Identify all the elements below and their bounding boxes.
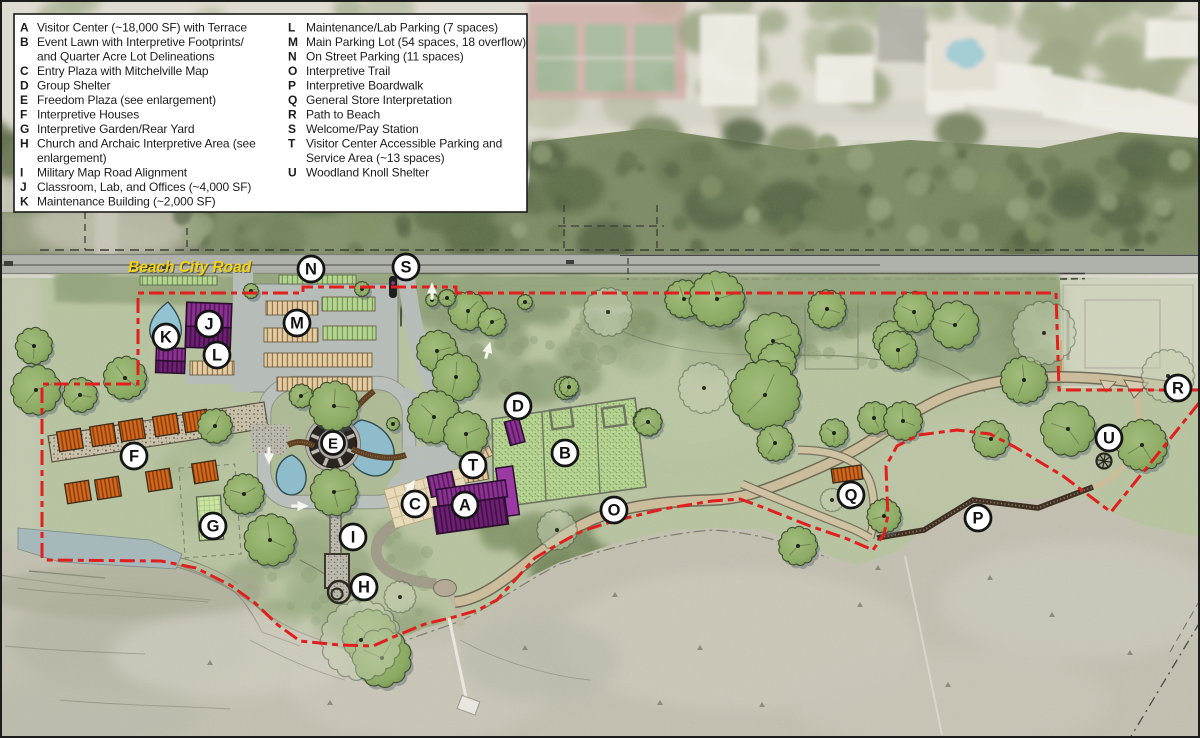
svg-text:F: F <box>20 108 27 122</box>
svg-text:Church and Archaic Interpretiv: Church and Archaic Interpretive Area (se… <box>37 137 256 151</box>
svg-text:J: J <box>204 316 213 334</box>
svg-text:G: G <box>20 122 29 136</box>
svg-text:U: U <box>288 166 297 180</box>
svg-text:T: T <box>468 457 478 475</box>
svg-text:Military Map Road Alignment: Military Map Road Alignment <box>37 166 188 180</box>
svg-text:I: I <box>20 166 23 180</box>
svg-text:Classroom, Lab, and Offices (~: Classroom, Lab, and Offices (~4,000 SF) <box>37 180 251 194</box>
svg-text:O: O <box>608 502 621 520</box>
svg-text:A: A <box>459 497 471 515</box>
svg-text:and Quarter Acre Lot Delineati: and Quarter Acre Lot Delineations <box>37 50 215 64</box>
svg-text:B: B <box>559 445 571 463</box>
svg-text:E: E <box>20 93 28 107</box>
svg-text:Q: Q <box>845 487 858 505</box>
svg-text:D: D <box>512 398 524 416</box>
svg-text:R: R <box>288 108 297 122</box>
svg-text:Interpretive Garden/Rear Yard: Interpretive Garden/Rear Yard <box>37 122 194 136</box>
svg-text:K: K <box>20 195 29 209</box>
svg-text:F: F <box>129 448 139 466</box>
svg-text:Event Lawn with Interpretive F: Event Lawn with Interpretive Footprints/ <box>37 35 245 49</box>
svg-text:Visitor Center (~18,000 SF) wi: Visitor Center (~18,000 SF) with Terrace <box>37 21 247 35</box>
svg-text:H: H <box>20 137 29 151</box>
svg-text:M: M <box>288 35 298 49</box>
svg-text:R: R <box>1172 380 1184 398</box>
svg-text:J: J <box>20 180 27 194</box>
svg-text:Q: Q <box>288 93 297 107</box>
svg-text:N: N <box>305 261 317 279</box>
svg-text:P: P <box>972 510 983 528</box>
svg-text:Main Parking Lot (54 spaces, 1: Main Parking Lot (54 spaces, 18 overflow… <box>306 35 526 49</box>
svg-text:S: S <box>400 259 411 277</box>
svg-text:General Store Interpretation: General Store Interpretation <box>306 93 452 107</box>
svg-text:N: N <box>288 50 297 64</box>
svg-text:M: M <box>290 315 304 333</box>
svg-text:Interpretive Trail: Interpretive Trail <box>306 64 390 78</box>
svg-text:C: C <box>20 64 29 78</box>
svg-text:Path to Beach: Path to Beach <box>306 108 380 122</box>
svg-text:U: U <box>1103 430 1115 448</box>
svg-text:Group Shelter: Group Shelter <box>37 79 111 93</box>
svg-text:enlargement): enlargement) <box>37 151 107 165</box>
svg-text:Service Area (~13 spaces): Service Area (~13 spaces) <box>306 151 445 165</box>
svg-text:I: I <box>351 529 356 547</box>
svg-text:P: P <box>288 79 296 93</box>
svg-text:G: G <box>207 518 220 536</box>
svg-text:O: O <box>288 64 297 78</box>
svg-text:H: H <box>358 579 370 597</box>
svg-text:Interpretive Boardwalk: Interpretive Boardwalk <box>306 79 424 93</box>
svg-text:Maintenance/Lab Parking (7 spa: Maintenance/Lab Parking (7 spaces) <box>306 21 498 35</box>
svg-text:Welcome/Pay Station: Welcome/Pay Station <box>306 122 419 136</box>
svg-text:L: L <box>288 21 295 35</box>
svg-text:Maintenance Building (~2,000 S: Maintenance Building (~2,000 SF) <box>37 195 216 209</box>
svg-text:S: S <box>288 122 296 136</box>
svg-text:Freedom Plaza (see enlargement: Freedom Plaza (see enlargement) <box>37 93 216 107</box>
svg-text:Entry Plaza with Mitchelville: Entry Plaza with Mitchelville Map <box>37 64 209 78</box>
svg-text:C: C <box>409 496 421 514</box>
svg-text:A: A <box>20 21 29 35</box>
svg-text:On Street Parking (11 spaces): On Street Parking (11 spaces) <box>306 50 464 64</box>
svg-text:D: D <box>20 79 29 93</box>
svg-text:L: L <box>212 347 222 365</box>
svg-text:T: T <box>288 137 296 151</box>
svg-text:E: E <box>328 436 338 453</box>
svg-text:Beach City Road: Beach City Road <box>128 259 252 276</box>
svg-text:K: K <box>160 329 172 347</box>
svg-text:Woodland Knoll Shelter: Woodland Knoll Shelter <box>306 166 429 180</box>
svg-text:Interpretive Houses: Interpretive Houses <box>37 108 139 122</box>
svg-text:B: B <box>20 35 29 49</box>
svg-text:Visitor Center Accessible Park: Visitor Center Accessible Parking and <box>306 137 502 151</box>
